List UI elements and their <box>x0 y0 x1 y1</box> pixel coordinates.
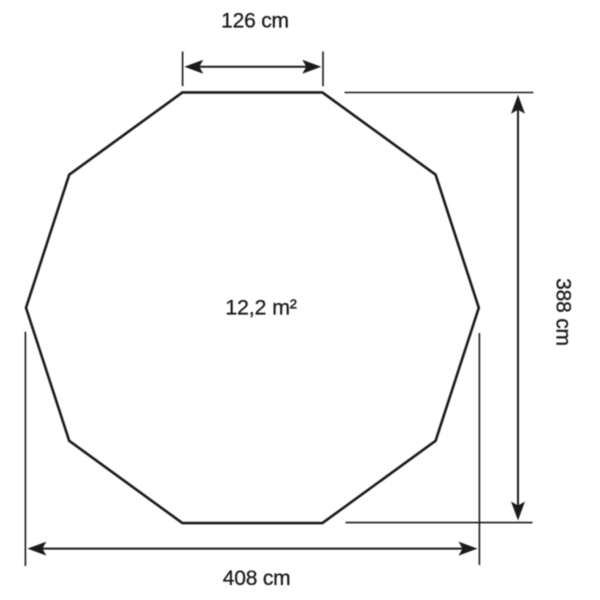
svg-text:388 cm: 388 cm <box>552 278 575 346</box>
svg-text:408 cm: 408 cm <box>223 567 291 590</box>
svg-text:12,2 m²: 12,2 m² <box>225 295 297 319</box>
svg-text:126 cm: 126 cm <box>221 10 289 33</box>
